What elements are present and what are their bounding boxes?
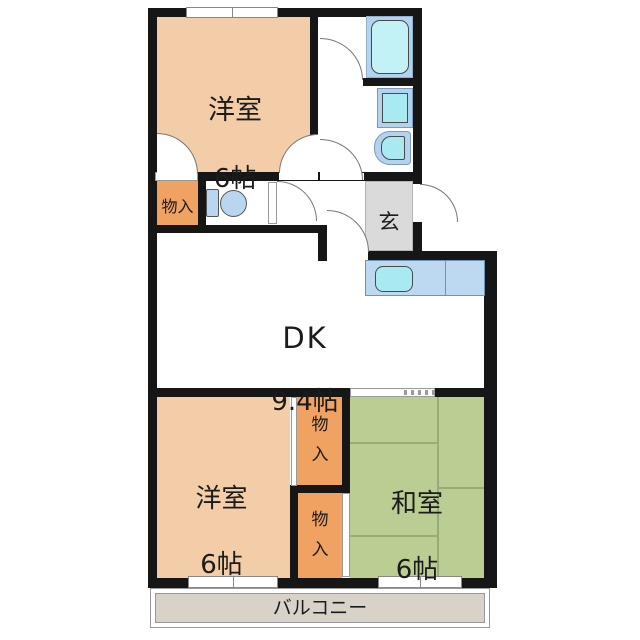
balcony-label: バルコニー — [156, 594, 484, 622]
floor-plan: 洋室 6帖 DK 9.4帖 洋室 6帖 和室 6帖 物入 物入 物入 玄 バルコ… — [0, 0, 640, 640]
washbasin-bowl — [381, 136, 405, 160]
room-label-dk: DK 9.4帖 — [240, 290, 370, 450]
wall — [290, 485, 350, 493]
wall — [363, 78, 422, 86]
kitchen-counter-divider — [445, 261, 446, 295]
closet-lower-label: 物入 — [308, 505, 332, 565]
room-name: DK — [240, 322, 370, 354]
window — [186, 7, 278, 18]
closet-hall-label: 物入 — [155, 193, 200, 217]
kitchen-sink-icon — [375, 266, 413, 292]
wall — [484, 251, 497, 588]
room-name: 和室 — [352, 488, 482, 521]
door-arc — [327, 210, 369, 252]
room-name: 洋室 — [150, 483, 293, 516]
room-name: 洋室 — [160, 94, 310, 128]
entrance-door-arc — [420, 184, 458, 222]
room-size: 6帖 — [352, 554, 482, 587]
balcony-floor: バルコニー — [155, 593, 485, 623]
door-gap — [327, 252, 368, 260]
wall — [435, 388, 497, 397]
room-size: 9.4帖 — [240, 386, 370, 418]
closet-upper-label: 物入 — [308, 410, 332, 470]
door-arc — [320, 139, 363, 180]
room-size: 6帖 — [150, 549, 293, 582]
open-partition-dashes — [404, 390, 434, 395]
closet-sliding-front — [342, 493, 350, 577]
room-size: 6帖 — [160, 162, 310, 196]
entrance-label: 玄 — [365, 206, 413, 236]
bathtub-icon — [371, 20, 409, 74]
washing-machine-tub — [382, 93, 408, 123]
door-arc — [320, 38, 363, 80]
balcony: バルコニー — [150, 588, 490, 628]
